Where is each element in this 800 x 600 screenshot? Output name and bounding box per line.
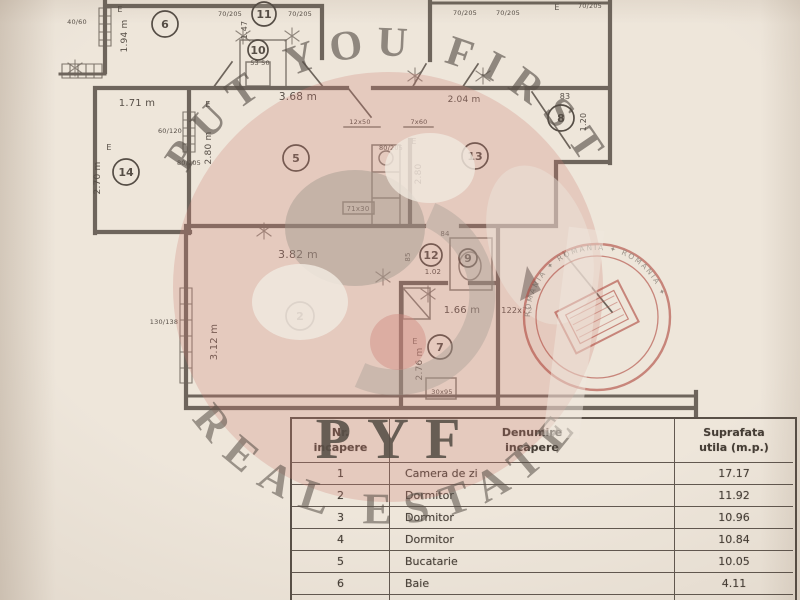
red-dimension-label: 122x72 [501, 306, 532, 315]
table-row: 4Dormitor10.84 [292, 529, 795, 551]
table-row: 5Bucatarie10.05 [292, 551, 795, 573]
room-number: 14 [118, 166, 134, 179]
dimension-label: 130/138 [150, 318, 178, 326]
dimension-label: 2.80 m [204, 132, 214, 165]
dimension-label: 30x95 [431, 388, 452, 396]
table-header-row: Nr. incapere Denumire incapere Suprafata… [292, 419, 795, 463]
room-area-table: Nr. incapere Denumire incapere Suprafata… [290, 417, 797, 600]
dimension-label: 60/120 [158, 127, 182, 135]
stamp-emblem [555, 281, 638, 354]
window-symbol [62, 8, 195, 383]
dimension-label: E [106, 143, 111, 152]
table-cell-name: Dormitor [390, 529, 675, 551]
room-number-circle [283, 145, 309, 171]
table-cell-nr: 5 [292, 551, 390, 573]
dimension-label: 1.20 [579, 113, 588, 132]
room-number: 13 [467, 150, 482, 163]
room-number-circle [428, 335, 452, 359]
room-number-circle [113, 159, 139, 185]
dimension-label: 2.76 m [415, 348, 425, 381]
dimension-label: E [554, 3, 559, 12]
table-header-name: Denumire incapere [390, 419, 675, 463]
dimension-label: 3.68 m [279, 91, 317, 103]
dimension-label: E [117, 5, 122, 14]
room-number-circle [420, 244, 442, 266]
dimension-label: E [412, 337, 417, 346]
room-number: 12 [423, 249, 438, 262]
table-cell-area: 10.96 [675, 507, 793, 529]
table-row: 2Dormitor11.92 [292, 485, 795, 507]
paper-glare [543, 227, 604, 440]
dimension-labels: 1.94 m1.71 m2.70 m2.80 m3.68 m2.04 m831.… [67, 2, 602, 396]
sink-icon [379, 151, 393, 165]
dimension-label: 70/205 [496, 9, 520, 17]
table-body: 1Camera de zi17.172Dormitor11.923Dormito… [292, 463, 795, 600]
dimension-label: 1.02 [425, 268, 441, 276]
floor-plan-walls [60, 0, 696, 415]
table-row: 1Camera de zi17.17 [292, 463, 795, 485]
dimension-label: 70/205 [288, 10, 312, 18]
table-cell-name: Dormitor [390, 507, 675, 529]
table-cell-name: WC serviciu [390, 595, 675, 600]
table-cell-nr: 3 [292, 507, 390, 529]
dimension-label: 12x50 [349, 118, 370, 126]
room-number: 10 [250, 44, 266, 57]
dimension-label: 85 [404, 252, 412, 261]
room-number-circle [152, 11, 178, 37]
dimension-label: 7x60 [410, 118, 427, 126]
table-row: 3Dormitor10.96 [292, 507, 795, 529]
dimension-label: 1.47 [240, 21, 249, 40]
table-cell-nr: 1 [292, 463, 390, 485]
stamp-ring-text: ROMANIA ✦ ROMANIA ✦ ROMANIA ✦ [523, 243, 668, 317]
scanned-floor-plan-page: Nr. incapere Denumire incapere Suprafata… [0, 0, 800, 600]
table-cell-nr: 2 [292, 485, 390, 507]
dimension-label: 70/205 [218, 10, 242, 18]
table-header-nr: Nr. incapere [292, 419, 390, 463]
table-row: 7WC serviciu [292, 595, 795, 600]
room-number: 8 [557, 112, 565, 125]
table-cell-name: Camera de zi [390, 463, 675, 485]
dimension-label: 2.04 m [448, 95, 481, 105]
table-cell-area: 4.11 [675, 573, 793, 595]
dimension-label: 3.82 m [278, 248, 318, 261]
room-number: 11 [256, 8, 271, 21]
dimension-label: 2.80 [414, 164, 424, 185]
table-cell-area: 11.92 [675, 485, 793, 507]
room-number-circle [548, 105, 574, 131]
dimension-label: 1.66 m [444, 305, 480, 316]
room-number: 7 [436, 341, 444, 354]
dimension-label: E [411, 137, 416, 146]
dimension-label: 2.70 m [93, 162, 103, 195]
table-cell-area: 17.17 [675, 463, 793, 485]
dimension-label: 70/205 [453, 9, 477, 17]
dimension-label: 3.12 m [209, 324, 220, 360]
room-number-circle [252, 2, 276, 26]
table-cell-nr: 4 [292, 529, 390, 551]
room-number-circle [462, 143, 488, 169]
table-cell-name: Bucatarie [390, 551, 675, 573]
dimension-label: 40/60 [67, 18, 87, 26]
room-number: 6 [161, 18, 169, 31]
dimension-label: 71x30 [347, 205, 370, 213]
table-row: 6Baie4.11 [292, 573, 795, 595]
dimension-label: 53 50 [250, 59, 270, 67]
table-header-area: Suprafata utila (m.p.) [675, 419, 793, 463]
dimension-label: 83 [560, 92, 571, 101]
dimension-label: 1.71 m [119, 98, 155, 109]
room-number: 5 [292, 152, 300, 165]
table-cell-name: Baie [390, 573, 675, 595]
room-number-circle [459, 249, 477, 267]
dimension-label: 70/205 [578, 2, 602, 10]
dimension-label: 84 [440, 230, 450, 238]
table-cell-area: 10.05 [675, 551, 793, 573]
dimension-label: 1.94 m [120, 20, 130, 53]
dimension-label: 80/205 [177, 159, 201, 167]
table-cell-name: Dormitor [390, 485, 675, 507]
room-markers: 6111014513821297 [113, 2, 574, 359]
room-number-circle [286, 302, 314, 330]
room-number: 9 [464, 252, 472, 265]
pyf-logo-swirl [252, 133, 613, 382]
watermark-text-top: PUT YOU FIRST [156, 19, 619, 179]
toilet-icon [459, 252, 481, 280]
dimension-label: E [205, 100, 210, 109]
table-cell-nr: 6 [292, 573, 390, 595]
room-number: 2 [296, 310, 304, 323]
table-cell-nr: 7 [292, 595, 390, 600]
dimension-label: 80/205 [379, 144, 403, 152]
entrance-arrow-icon [520, 266, 541, 301]
room-number-circle [248, 40, 268, 60]
table-cell-area [675, 595, 793, 600]
table-cell-area: 10.84 [675, 529, 793, 551]
rubber-stamp: ROMANIA ✦ ROMANIA ✦ ROMANIA ✦ [523, 243, 670, 390]
